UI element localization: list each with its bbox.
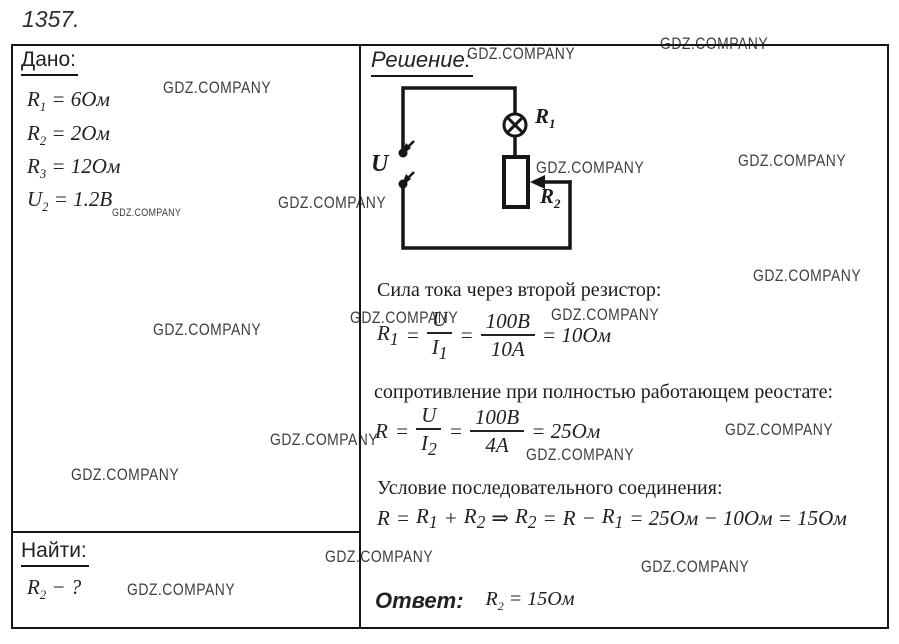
term: R bbox=[563, 506, 576, 531]
answer-row: Ответ: R2 = 15Ом bbox=[375, 588, 574, 614]
formula-step2: R = U I2 = 100В 4А = 25Ом bbox=[375, 403, 600, 459]
given-find-divider bbox=[11, 531, 361, 533]
find-value: − ? bbox=[51, 575, 81, 599]
equals-sign: = bbox=[449, 419, 463, 444]
rheostat-label: R2 bbox=[540, 184, 561, 212]
equals-sign: = bbox=[395, 419, 409, 444]
fraction: U I2 bbox=[416, 403, 442, 459]
column-divider bbox=[359, 44, 361, 629]
term: R bbox=[377, 506, 390, 531]
implies-sign: ⇒ bbox=[491, 506, 509, 531]
equals-sign: = bbox=[396, 506, 410, 531]
fraction: 100В 4А bbox=[470, 405, 524, 457]
fraction-numerator: U bbox=[416, 403, 441, 430]
given-symbol: R bbox=[27, 121, 40, 145]
given-value: = 1.2В bbox=[54, 187, 113, 211]
formula-lhs: R bbox=[375, 419, 388, 444]
answer-value: R2 = 15Ом bbox=[486, 588, 575, 614]
given-symbol: R bbox=[27, 154, 40, 178]
step3-text: Условие последовательного соединения: bbox=[377, 477, 723, 500]
given-value: = 2Ом bbox=[51, 121, 110, 145]
given-item: R1 = 6Ом bbox=[27, 87, 110, 115]
find-header: Найти: bbox=[21, 539, 89, 567]
fraction-denominator: I2 bbox=[416, 430, 442, 459]
term: R1 bbox=[602, 504, 624, 533]
fraction-denominator: 4А bbox=[480, 432, 513, 457]
given-value: = 12Ом bbox=[51, 154, 120, 178]
equals-sign: = bbox=[460, 323, 474, 348]
lamp-label: R1 bbox=[535, 104, 556, 132]
step1-text: Сила тока через второй резистор: bbox=[377, 279, 661, 302]
given-subscript: 2 bbox=[42, 200, 48, 214]
fraction-numerator: 100В bbox=[481, 309, 535, 336]
fraction-numerator: U bbox=[427, 307, 452, 334]
fraction-numerator: 100В bbox=[470, 405, 524, 432]
equals-sign: = bbox=[406, 323, 420, 348]
plus-sign: + bbox=[444, 506, 458, 531]
formula-step1: R1 = U I1 = 100В 10А = 10Ом bbox=[377, 307, 611, 363]
formula-result: = 25Ом − 10Ом = 15Ом bbox=[629, 506, 846, 531]
given-item: R3 = 12Ом bbox=[27, 154, 120, 182]
term: R1 bbox=[416, 504, 438, 533]
wire-top bbox=[403, 88, 515, 149]
solution-page: GDZ.COMPANY GDZ.COMPANY GDZ.COMPANY GDZ.… bbox=[0, 0, 899, 644]
formula-result: = 10Ом bbox=[542, 323, 611, 348]
formula-result: = 25Ом bbox=[531, 419, 600, 444]
lamp-label-subscript: 1 bbox=[549, 116, 556, 131]
given-item: U2 = 1.2В bbox=[27, 187, 112, 215]
fraction-denominator: I1 bbox=[427, 334, 453, 363]
given-header: Дано: bbox=[21, 48, 78, 76]
rheostat-label-subscript: 2 bbox=[554, 196, 561, 211]
fraction: U I1 bbox=[427, 307, 453, 363]
find-item: R2 − ? bbox=[27, 575, 81, 603]
find-subscript: 2 bbox=[40, 588, 46, 602]
given-subscript: 1 bbox=[40, 100, 46, 114]
given-value: = 6Ом bbox=[51, 87, 110, 111]
fraction-denominator: 10А bbox=[486, 336, 530, 361]
term: R2 bbox=[464, 504, 486, 533]
lamp-label-symbol: R bbox=[535, 104, 549, 128]
equals-sign: = bbox=[543, 506, 557, 531]
minus-sign: − bbox=[582, 506, 596, 531]
answer-label: Ответ: bbox=[375, 588, 464, 614]
given-subscript: 2 bbox=[40, 134, 46, 148]
find-symbol: R bbox=[27, 575, 40, 599]
rheostat-label-symbol: R bbox=[540, 184, 554, 208]
step2-text: сопротивление при полностью работающем р… bbox=[374, 381, 833, 404]
formula-lhs: R1 bbox=[377, 321, 399, 350]
source-voltage-label: U bbox=[371, 151, 388, 178]
fraction: 100В 10А bbox=[481, 309, 535, 361]
given-subscript: 3 bbox=[40, 167, 46, 181]
solution-header: Решение: bbox=[371, 47, 473, 77]
given-item: R2 = 2Ом bbox=[27, 121, 110, 149]
given-symbol: U bbox=[27, 187, 42, 211]
rheostat-icon bbox=[504, 157, 528, 207]
given-symbol: R bbox=[27, 87, 40, 111]
problem-number: 1357. bbox=[22, 6, 80, 33]
formula-step3: R = R1 + R2 ⇒ R2 = R − R1 = 25Ом − 10Ом … bbox=[377, 504, 847, 533]
term: R2 bbox=[515, 504, 537, 533]
